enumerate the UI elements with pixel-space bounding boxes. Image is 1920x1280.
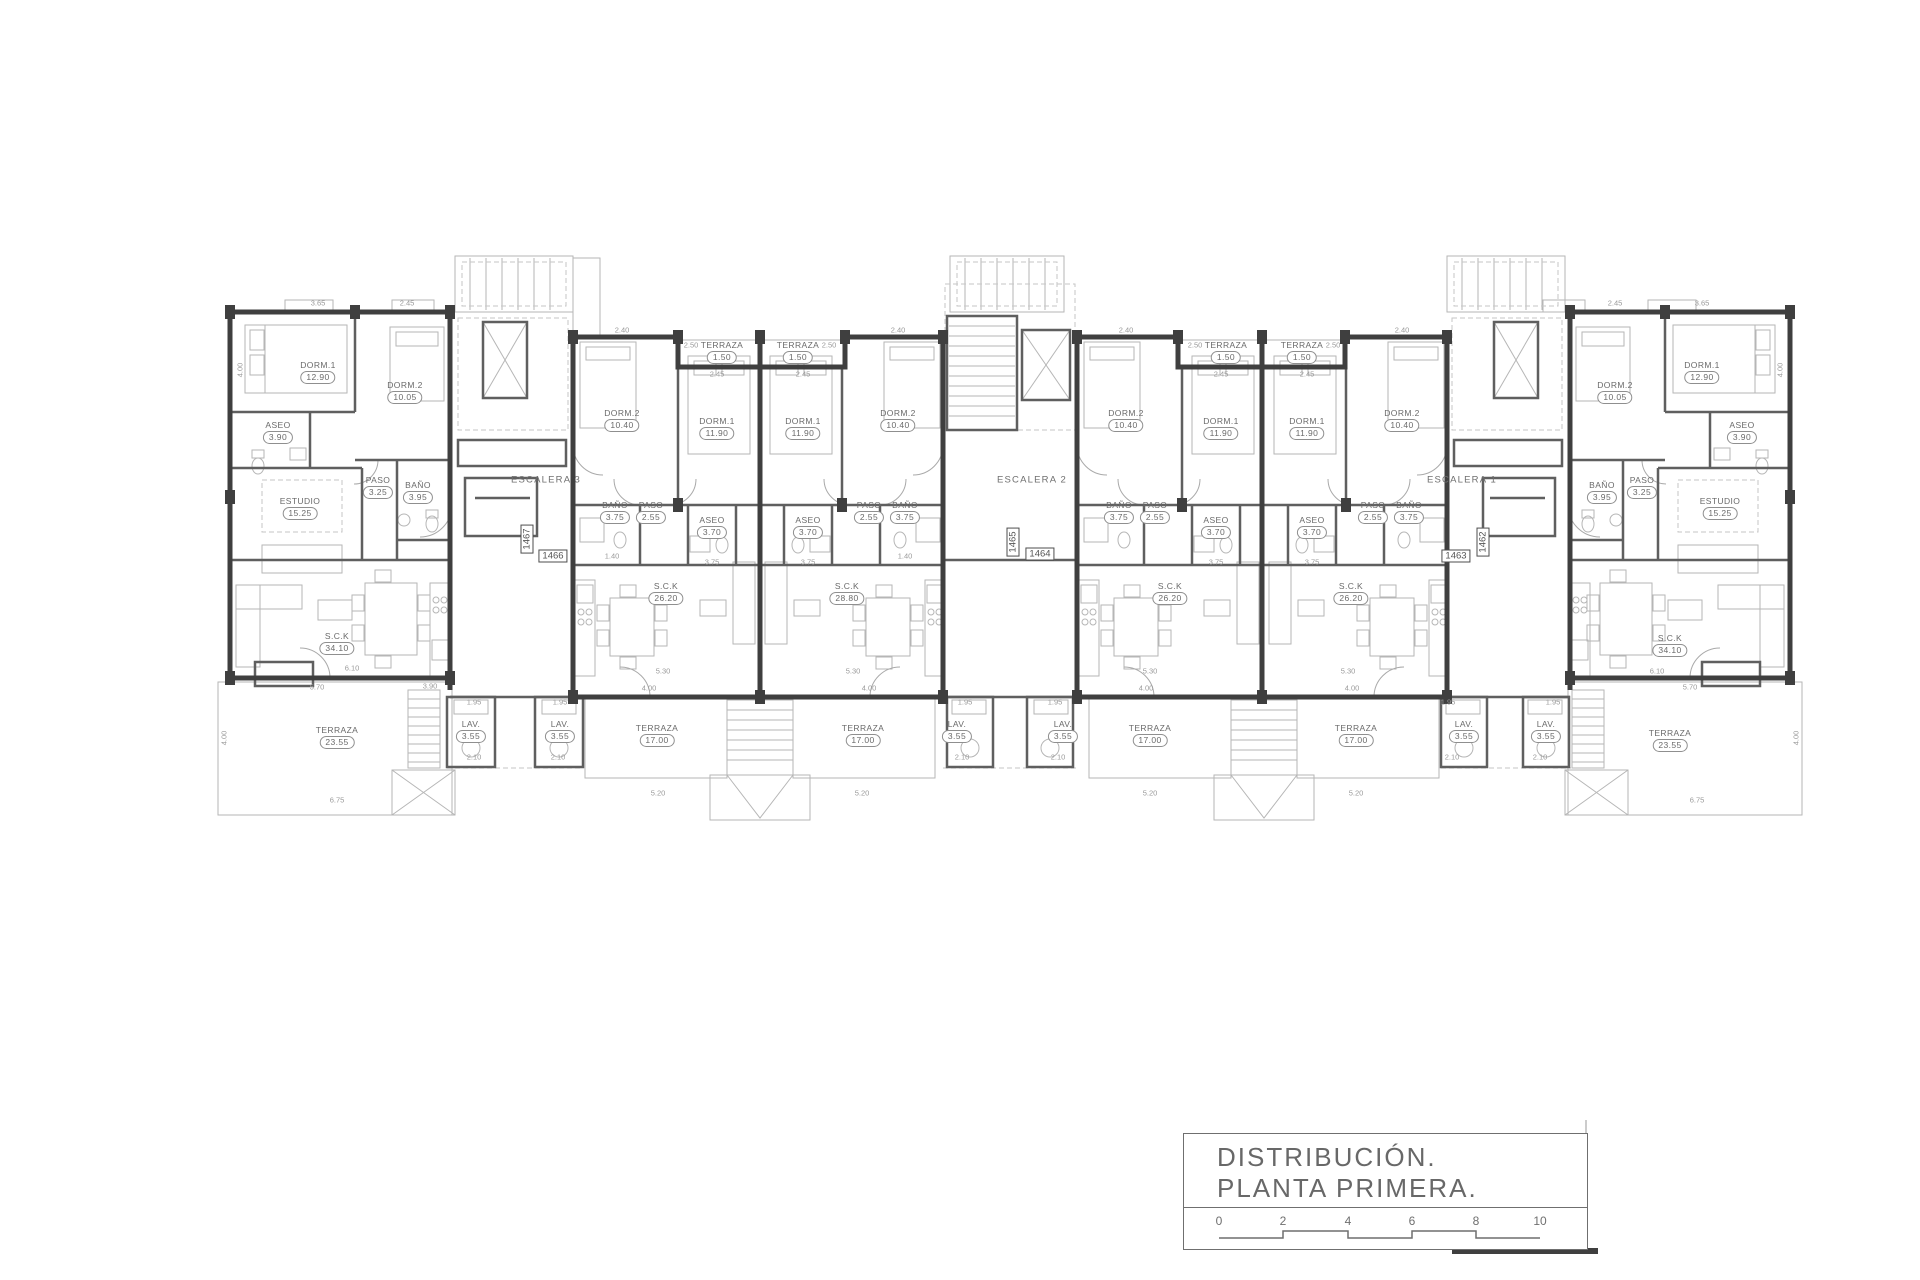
room-label: PASO3.25 [1627,475,1657,499]
room-label: DORM.210.40 [1384,408,1419,432]
scale-bar-graphic [1184,1208,1589,1249]
dimension-label: 5.20 [1143,789,1158,798]
room-label: TERRAZA23.55 [316,725,358,749]
dimension-label: 5.30 [846,667,861,676]
room-label: LAV.3.55 [545,719,575,743]
dimension-label: 1.95 [467,698,482,707]
room-label: S.C.K26.20 [648,581,683,605]
room-label: BAÑO3.75 [1104,500,1134,524]
unit-number-tag: 1466 [538,550,567,563]
dimension-label: 2.45 [1608,299,1623,308]
room-label: PASO3.25 [363,475,393,499]
drawing-title: DISTRIBUCIÓN. PLANTA PRIMERA. [1184,1134,1587,1208]
room-label: DORM.111.90 [699,416,734,440]
drawing-title-line2: PLANTA PRIMERA. [1217,1173,1587,1204]
room-label: LAV.3.55 [1449,719,1479,743]
room-label: TERRAZA17.00 [842,723,884,747]
dimension-label: 3.90 [423,682,438,691]
title-block: DISTRIBUCIÓN. PLANTA PRIMERA. 0246810 [1183,1133,1588,1250]
room-label: PASO2.55 [854,500,884,524]
room-label: DORM.111.90 [1289,416,1324,440]
dimension-label: 6.10 [345,664,360,673]
room-label: PASO2.55 [1140,500,1170,524]
dimension-label: 3.75 [1305,558,1320,567]
dimension-label: 3.65 [311,299,326,308]
floorplan-sheet: DORM.112.90DORM.210.05ASEO3.90PASO3.25BA… [0,0,1920,1280]
stairwell-label: ESCALERA 2 [997,475,1067,486]
dimension-label: 2.10 [955,753,970,762]
dimension-label: 3.75 [801,558,816,567]
room-label: TERRAZA1.50 [1281,340,1323,364]
dimension-label: 4.00 [642,684,657,693]
dimension-label: 2.40 [1119,326,1134,335]
dimension-label: 5.70 [310,683,325,692]
dimension-label: 2.45 [400,299,415,308]
dimension-label: 2.10 [1533,753,1548,762]
dimension-label: 2.45 [1214,370,1229,379]
room-label: ASEO3.70 [1201,515,1231,539]
dimension-label: 6.10 [1650,667,1665,676]
dimension-label: 2.45 [710,370,725,379]
room-label: LAV.3.55 [456,719,486,743]
drawing-title-line1: DISTRIBUCIÓN. [1217,1142,1587,1173]
dimension-label: 2.40 [891,326,906,335]
dimension-label: 2.50 [1188,341,1203,350]
room-label: S.C.K26.20 [1152,581,1187,605]
room-label: DORM.111.90 [785,416,820,440]
unit-number-tag: 1467 [521,524,534,553]
dimension-label: 5.20 [855,789,870,798]
dimension-label: 5.30 [656,667,671,676]
room-label: ASEO3.70 [793,515,823,539]
room-label: TERRAZA17.00 [1335,723,1377,747]
unit-number-tag: 1462 [1477,527,1490,556]
room-label: PASO2.55 [636,500,666,524]
room-label: PASO2.55 [1358,500,1388,524]
room-label: DORM.210.40 [604,408,639,432]
dimension-label: 5.20 [651,789,666,798]
dimension-label: 1.40 [898,552,913,561]
dimension-label: 1.95 [1441,698,1456,707]
dimension-label: 4.00 [862,684,877,693]
dimension-label: 2.50 [684,341,699,350]
room-label: LAV.3.55 [942,719,972,743]
scale-bar: 0246810 [1184,1208,1587,1249]
room-label: ASEO3.90 [263,420,293,444]
room-label: S.C.K34.10 [319,631,354,655]
room-label: S.C.K28.80 [829,581,864,605]
room-label: DORM.112.90 [300,360,335,384]
dimension-label: 6.75 [1690,796,1705,805]
dimension-label: 1.95 [1048,698,1063,707]
dimension-label: 4.00 [1139,684,1154,693]
dimension-label: 5.30 [1341,667,1356,676]
dimension-label: 1.95 [553,698,568,707]
dimension-label: 5.30 [1143,667,1158,676]
dimension-label: 5.70 [1683,683,1698,692]
plan-labels: DORM.112.90DORM.210.05ASEO3.90PASO3.25BA… [0,0,1920,1280]
dimension-label: 6.75 [330,796,345,805]
room-label: LAV.3.55 [1048,719,1078,743]
dimension-label: 3.65 [1695,299,1710,308]
stairwell-label: ESCALERA 3 [511,475,581,486]
room-label: TERRAZA1.50 [777,340,819,364]
dimension-label: 1.95 [1546,698,1561,707]
dimension-label: 4.00 [1345,684,1360,693]
room-label: TERRAZA23.55 [1649,728,1691,752]
stairwell-label: ESCALERA 1 [1427,475,1497,486]
room-label: TERRAZA1.50 [1205,340,1247,364]
room-label: DORM.210.40 [880,408,915,432]
dimension-label: 2.10 [467,753,482,762]
dimension-label: 2.10 [1445,753,1460,762]
room-label: ASEO3.70 [697,515,727,539]
dimension-label: 4.00 [236,363,245,378]
room-label: ESTUDIO15.25 [280,496,321,520]
dimension-label: 2.45 [1300,370,1315,379]
dimension-label: 4.00 [1792,731,1801,746]
dimension-label: 3.75 [705,558,720,567]
room-label: S.C.K34.10 [1652,633,1687,657]
room-label: DORM.210.05 [1597,380,1632,404]
room-label: S.C.K26.20 [1333,581,1368,605]
dimension-label: 2.10 [1051,753,1066,762]
room-label: ASEO3.90 [1727,420,1757,444]
room-label: TERRAZA1.50 [701,340,743,364]
dimension-label: 1.95 [958,698,973,707]
dimension-label: 2.40 [1395,326,1410,335]
unit-number-tag: 1464 [1025,548,1054,561]
dimension-label: 2.50 [822,341,837,350]
room-label: LAV.3.55 [1531,719,1561,743]
dimension-label: 2.40 [615,326,630,335]
dimension-label: 1.40 [605,552,620,561]
room-label: DORM.111.90 [1203,416,1238,440]
room-label: DORM.210.05 [387,380,422,404]
dimension-label: 3.75 [1209,558,1224,567]
room-label: BAÑO3.75 [890,500,920,524]
room-label: BAÑO3.75 [1394,500,1424,524]
dimension-label: 2.45 [796,370,811,379]
unit-number-tag: 1463 [1441,550,1470,563]
room-label: DORM.112.90 [1684,360,1719,384]
room-label: BAÑO3.95 [1587,480,1617,504]
room-label: ESTUDIO15.25 [1700,496,1741,520]
dimension-label: 4.00 [1776,363,1785,378]
dimension-label: 2.50 [1326,341,1341,350]
room-label: BAÑO3.75 [600,500,630,524]
room-label: TERRAZA17.00 [1129,723,1171,747]
dimension-label: 2.10 [551,753,566,762]
room-label: TERRAZA17.00 [636,723,678,747]
unit-number-tag: 1465 [1007,527,1020,556]
room-label: ASEO3.70 [1297,515,1327,539]
dimension-label: 4.00 [220,731,229,746]
dimension-label: 5.20 [1349,789,1364,798]
room-label: BAÑO3.95 [403,480,433,504]
room-label: DORM.210.40 [1108,408,1143,432]
